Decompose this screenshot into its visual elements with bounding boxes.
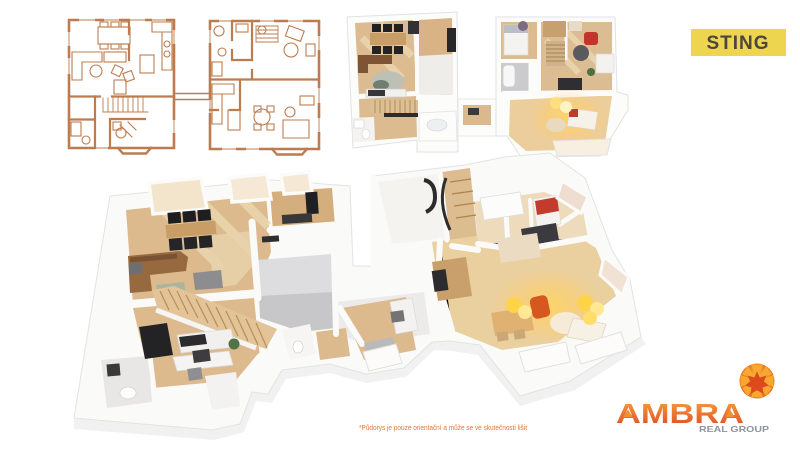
svg-text:REAL GROUP: REAL GROUP (699, 424, 769, 434)
svg-text:STING: STING (706, 33, 769, 54)
svg-text:*Půdorys je pouze orientační a: *Půdorys je pouze orientační a může se v… (359, 423, 528, 432)
